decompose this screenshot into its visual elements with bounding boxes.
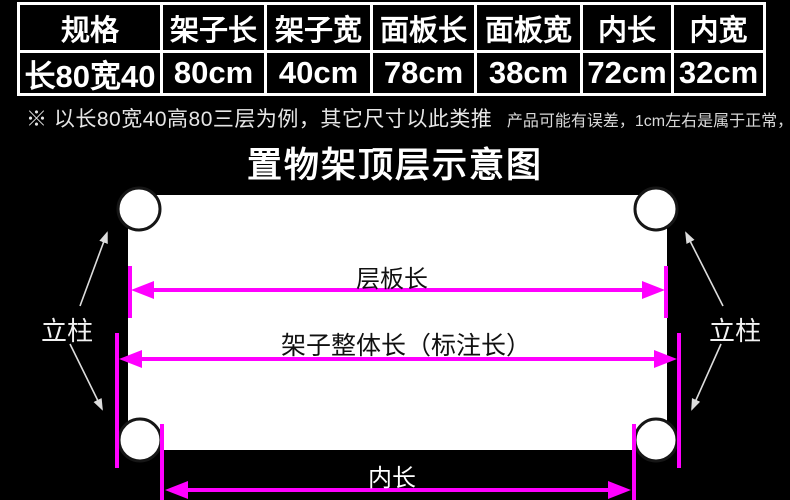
board-length-label: 层板长 xyxy=(356,259,428,294)
post-circle-top-right xyxy=(635,188,677,230)
post-pointer-right-top xyxy=(686,233,723,306)
inner-length-label: 内长 xyxy=(368,458,416,493)
inner-length-arrowhead-left xyxy=(165,481,188,499)
shelf-top-diagram xyxy=(0,0,790,500)
inner-length-arrowhead-right xyxy=(608,481,631,499)
post-label-right: 立柱 xyxy=(709,311,761,348)
product-spec-image: { "spec_table": { "columns": [ {"header"… xyxy=(0,0,790,500)
post-label-left: 立柱 xyxy=(41,311,93,348)
post-circle-top-left xyxy=(118,188,160,230)
post-circle-bottom-right xyxy=(635,419,677,461)
post-pointer-left-bottom xyxy=(70,344,102,409)
post-pointer-left-top xyxy=(80,233,107,306)
post-circle-bottom-left xyxy=(119,419,161,461)
overall-length-label: 架子整体长（标注长） xyxy=(281,326,531,362)
post-pointer-right-bottom xyxy=(692,344,721,409)
shelf-panel xyxy=(128,195,667,450)
